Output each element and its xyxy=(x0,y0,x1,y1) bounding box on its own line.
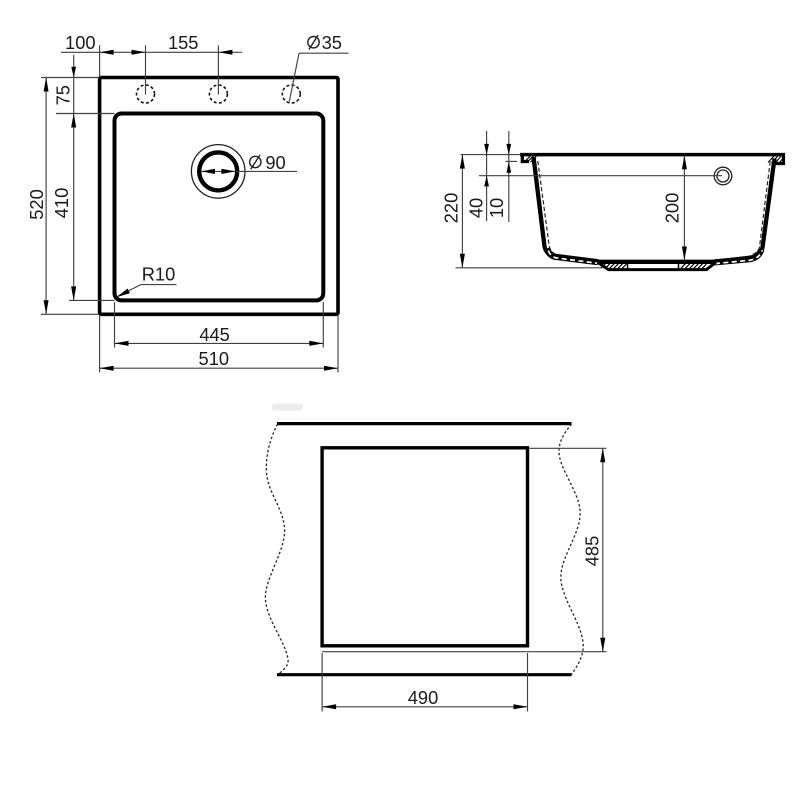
svg-text:75: 75 xyxy=(52,85,73,105)
svg-text:90: 90 xyxy=(265,152,285,173)
svg-text:100: 100 xyxy=(65,32,96,53)
svg-text:410: 410 xyxy=(51,188,72,219)
svg-text:R10: R10 xyxy=(142,264,176,285)
svg-text:10: 10 xyxy=(486,198,507,218)
svg-text:155: 155 xyxy=(168,32,199,53)
svg-text:445: 445 xyxy=(199,324,230,345)
svg-text:485: 485 xyxy=(582,536,603,567)
svg-text:35: 35 xyxy=(322,32,342,53)
svg-text:220: 220 xyxy=(441,193,462,224)
svg-text:200: 200 xyxy=(662,193,683,224)
svg-text:510: 510 xyxy=(199,348,230,369)
svg-text:40: 40 xyxy=(466,198,487,218)
svg-text:520: 520 xyxy=(26,189,47,220)
svg-text:490: 490 xyxy=(408,687,439,708)
